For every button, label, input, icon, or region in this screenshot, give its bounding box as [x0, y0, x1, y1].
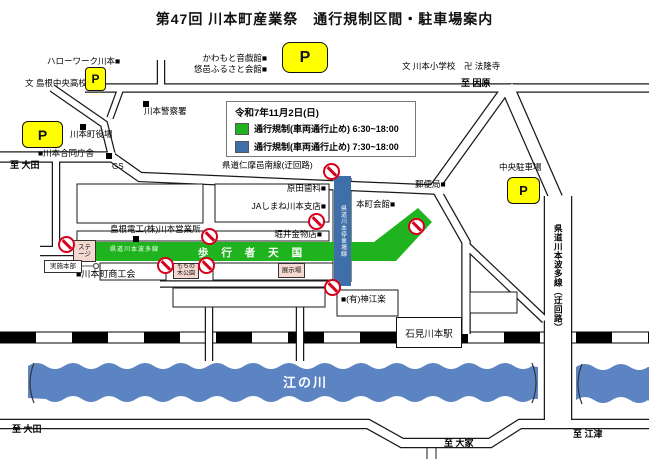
post-office-label: 郵便局■	[415, 180, 446, 189]
to-inbara-label: 至 因原	[461, 79, 491, 88]
bypass-road-label: 県道川本波多線（迂回路）	[549, 224, 567, 364]
legend-box: 令和7年11月2日(日) 通行規制(車両通行止め) 6:30~18:00 通行規…	[226, 101, 416, 157]
nima-ohnan-route-label: 県道仁摩邑南線(迂回路)	[222, 161, 313, 170]
to-oie-label: 至 大家	[444, 439, 474, 448]
no-entry-icon-6	[198, 257, 215, 274]
honmachi-kaikan-label: 本町会館■	[356, 200, 395, 209]
shokokai-label: ■川本町商工会	[76, 270, 135, 279]
mochinoki-park-box: もちの木公園	[173, 263, 199, 279]
legend-date: 令和7年11月2日(日)	[235, 105, 415, 119]
police-label: 川本警察署	[144, 107, 187, 116]
no-entry-slash	[327, 282, 337, 292]
no-entry-icon-3	[201, 228, 218, 245]
ja-kawamoto-label: JAしまね川本支店■	[251, 202, 326, 211]
gs-label: GS	[112, 163, 124, 171]
legend-row-green: 通行規制(車両通行止め) 6:30~18:00	[235, 122, 415, 135]
no-entry-icon-2	[308, 213, 325, 230]
legend-swatch-blue	[235, 141, 249, 153]
stage-box: ステージ	[73, 240, 96, 262]
horii-hardware-label: 堀井金物店■	[274, 230, 322, 239]
to-oda-north-label: 至 大田	[10, 161, 40, 170]
hellowork-label: ハローワーク川本■	[47, 57, 120, 66]
legend-label-blue: 通行規制(車両通行止め) 7:30~18:00	[254, 140, 399, 153]
legend-swatch-green	[235, 123, 249, 135]
to-gotsu-label: 至 江津	[573, 430, 603, 439]
furusato-kaikan-label: 悠邑ふるさと会館■	[194, 65, 267, 74]
chuo-highschool-label: 文 島根中央高校	[25, 79, 87, 88]
no-entry-icon-8	[408, 218, 425, 235]
parking-chuo: P	[507, 177, 540, 204]
no-entry-icon-5	[157, 257, 174, 274]
no-entry-slash	[201, 260, 211, 270]
blue-road-label: 県道川本停車場線	[340, 205, 346, 257]
green-route-label: 県道川本波多線	[110, 247, 159, 253]
headquarters-connector	[82, 264, 99, 269]
gs-marker	[106, 153, 112, 159]
no-entry-slash	[204, 231, 214, 241]
chuo-parking-label: 中央駐車場	[499, 163, 542, 172]
blue-regulated-road: 県道川本停車場線	[334, 176, 351, 286]
to-oda-south-label: 至 大田	[12, 425, 42, 434]
godochosha-label: ■川本合同庁舎	[38, 149, 94, 158]
no-entry-slash	[61, 239, 71, 249]
no-entry-slash	[411, 221, 421, 231]
parking-hellowork: P	[85, 67, 106, 91]
no-entry-icon-4	[58, 236, 75, 253]
harada-dental-label: 原田歯科■	[287, 184, 326, 193]
parking-kaikan: P	[282, 42, 328, 73]
elementary-temple-label: 文 川本小学校 卍 法隆寺	[402, 62, 500, 71]
river-name: 江の川	[283, 372, 328, 391]
no-entry-icon-7	[324, 279, 341, 296]
station-box: 石見川本駅	[396, 317, 462, 348]
to-oie-road-stub	[427, 447, 436, 459]
festival-traffic-map: 県道川本停車場線 県道川本波多線 歩 行 者 天 国 県道川本波多線（迂回路） …	[0, 0, 649, 459]
no-entry-slash	[326, 166, 336, 176]
page-title: 第47回 川本町産業祭 通行規制区間・駐車場案内	[0, 9, 649, 29]
legend-row-blue: 通行規制(車両通行止め) 7:30~18:00	[235, 140, 415, 153]
townhall-marker	[80, 124, 86, 130]
otogikan-label: かわもと音戯館■	[203, 54, 267, 63]
shimane-denko-label: 島根電工(株)川本営業所	[110, 225, 201, 234]
exhibition-box: 展示場	[278, 263, 305, 278]
headquarters-box: 実施本部	[44, 260, 82, 273]
kanzeraku-label: ■(有)神江楽	[341, 295, 386, 304]
no-entry-slash	[160, 260, 170, 270]
legend-label-green: 通行規制(車両通行止め) 6:30~18:00	[254, 122, 399, 135]
no-entry-icon-1	[323, 163, 340, 180]
police-marker	[143, 101, 149, 107]
parking-townhall: P	[22, 121, 63, 148]
shimane-denko-marker	[133, 236, 139, 242]
no-entry-slash	[311, 216, 321, 226]
townhall-label: 川本町役場	[70, 130, 113, 139]
station-name: 石見川本駅	[405, 326, 453, 340]
